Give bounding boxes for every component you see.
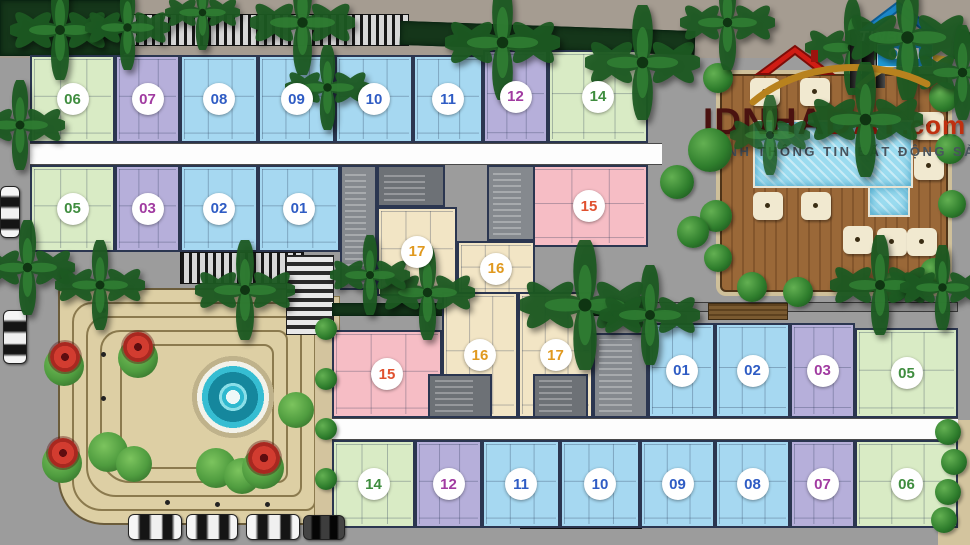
unit-apartment: 08 — [715, 440, 790, 528]
unit-number-badge: 15 — [371, 358, 403, 390]
unit-number-badge: 16 — [464, 339, 496, 371]
elevator-core — [377, 165, 445, 207]
palm-tree — [445, 0, 560, 100]
chimney — [811, 50, 818, 62]
lamp-dot — [165, 500, 170, 505]
unit-number-badge: 11 — [432, 83, 464, 115]
unit-number-badge: 01 — [283, 193, 315, 225]
unit-number-badge: 03 — [132, 193, 164, 225]
round-tree — [660, 165, 694, 199]
unit-apartment: 03 — [115, 165, 180, 252]
round-tree — [315, 368, 337, 390]
lamp-dot — [101, 352, 106, 357]
sun-lounger — [753, 192, 783, 220]
palm-tree — [730, 95, 810, 175]
shrub — [116, 446, 152, 482]
round-tree — [677, 216, 709, 248]
unit-number-badge: 15 — [573, 190, 605, 222]
corridor — [30, 143, 662, 165]
round-tree — [315, 318, 337, 340]
round-tree — [935, 479, 961, 505]
unit-number-badge: 06 — [891, 468, 923, 500]
unit-apartment: 02 — [180, 165, 258, 252]
unit-number-badge: 09 — [281, 83, 313, 115]
unit-number-badge: 06 — [57, 83, 89, 115]
unit-number-badge: 07 — [807, 468, 839, 500]
round-tree — [704, 244, 732, 272]
kids-pool — [868, 186, 910, 217]
unit-number-badge: 05 — [891, 357, 923, 389]
unit-number-badge: 02 — [203, 193, 235, 225]
lamp-dot — [265, 502, 270, 507]
unit-apartment: 11 — [482, 440, 560, 528]
palm-tree — [808, 62, 923, 177]
unit-apartment: 14 — [332, 440, 415, 528]
unit-number-badge: 10 — [358, 83, 390, 115]
palm-tree — [165, 0, 240, 50]
corridor — [332, 418, 958, 440]
parked-car — [3, 310, 27, 364]
unit-number-badge: 08 — [203, 83, 235, 115]
unit-number-badge: 17 — [401, 236, 433, 268]
palm-tree — [195, 240, 295, 340]
palm-tree — [330, 235, 410, 315]
round-tree — [935, 419, 961, 445]
unit-number-badge: 03 — [807, 355, 839, 387]
round-tree — [315, 418, 337, 440]
stair-core — [428, 374, 492, 418]
parked-car — [186, 514, 238, 540]
round-tree — [688, 128, 732, 172]
unit-number-badge: 07 — [132, 83, 164, 115]
round-tree — [737, 272, 767, 302]
unit-apartment: 15 — [332, 330, 442, 418]
unit-apartment: 05 — [855, 328, 958, 418]
round-tree — [941, 449, 967, 475]
unit-number-badge: 14 — [358, 468, 390, 500]
unit-apartment: 08 — [180, 55, 258, 143]
site-plan-image: { "watermarks": { "tinbds": { "line1": "… — [0, 0, 970, 545]
unit-number-badge: 11 — [505, 468, 537, 500]
unit-number-badge: 12 — [500, 81, 532, 113]
unit-number-badge: 10 — [584, 468, 616, 500]
palm-tree — [600, 265, 700, 365]
unit-number-badge: 08 — [737, 468, 769, 500]
palm-tree — [85, 0, 170, 70]
unit-number-badge: 12 — [433, 468, 465, 500]
unit-apartment: 03 — [790, 323, 855, 418]
unit-number-badge: 17 — [540, 339, 572, 371]
unit-number-badge: 01 — [666, 355, 698, 387]
unit-apartment: 10 — [560, 440, 640, 528]
parked-car — [246, 514, 300, 540]
round-tree — [783, 277, 813, 307]
unit-apartment: 07 — [790, 440, 855, 528]
unit-number-badge: 16 — [480, 253, 512, 285]
parked-car — [128, 514, 182, 540]
round-tree — [938, 190, 966, 218]
lamp-dot — [215, 502, 220, 507]
unit-number-badge: 05 — [57, 193, 89, 225]
unit-apartment: 12 — [415, 440, 482, 528]
unit-apartment: 15 — [530, 165, 648, 247]
unit-apartment: 01 — [258, 165, 340, 252]
stair-core — [487, 165, 535, 241]
unit-number-badge: 14 — [582, 81, 614, 113]
stair-core — [533, 374, 588, 418]
unit-apartment: 09 — [640, 440, 715, 528]
unit-number-badge: 02 — [737, 355, 769, 387]
palm-tree — [55, 240, 145, 330]
fountain — [191, 355, 275, 439]
shrub — [278, 392, 314, 428]
unit-apartment: 02 — [715, 323, 790, 418]
round-tree — [315, 468, 337, 490]
parked-car — [303, 515, 345, 540]
sun-lounger — [801, 192, 831, 220]
palm-tree — [0, 80, 65, 170]
bench — [708, 303, 788, 320]
lamp-dot — [101, 396, 106, 401]
unit-number-badge: 09 — [662, 468, 694, 500]
round-tree — [931, 507, 957, 533]
palm-tree — [900, 245, 970, 330]
